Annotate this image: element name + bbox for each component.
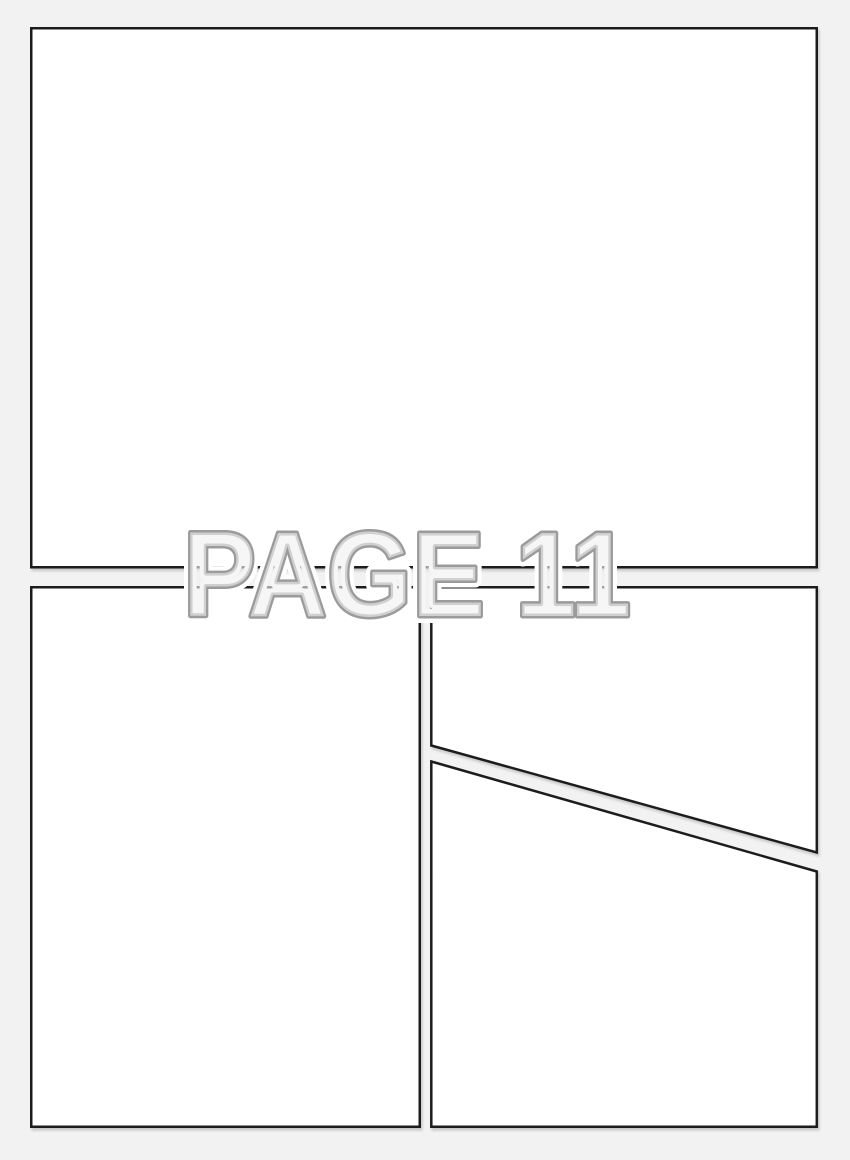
page-number-label: PAGE 11: [183, 506, 631, 642]
panel-bottom-left: [31, 587, 420, 1127]
comic-page-template: PAGE 11 PAGE 11: [0, 0, 850, 1160]
page-number: PAGE 11 PAGE 11: [183, 506, 631, 642]
comic-page-canvas: PAGE 11 PAGE 11: [0, 0, 850, 1160]
panel-top-full-width: [31, 28, 817, 567]
